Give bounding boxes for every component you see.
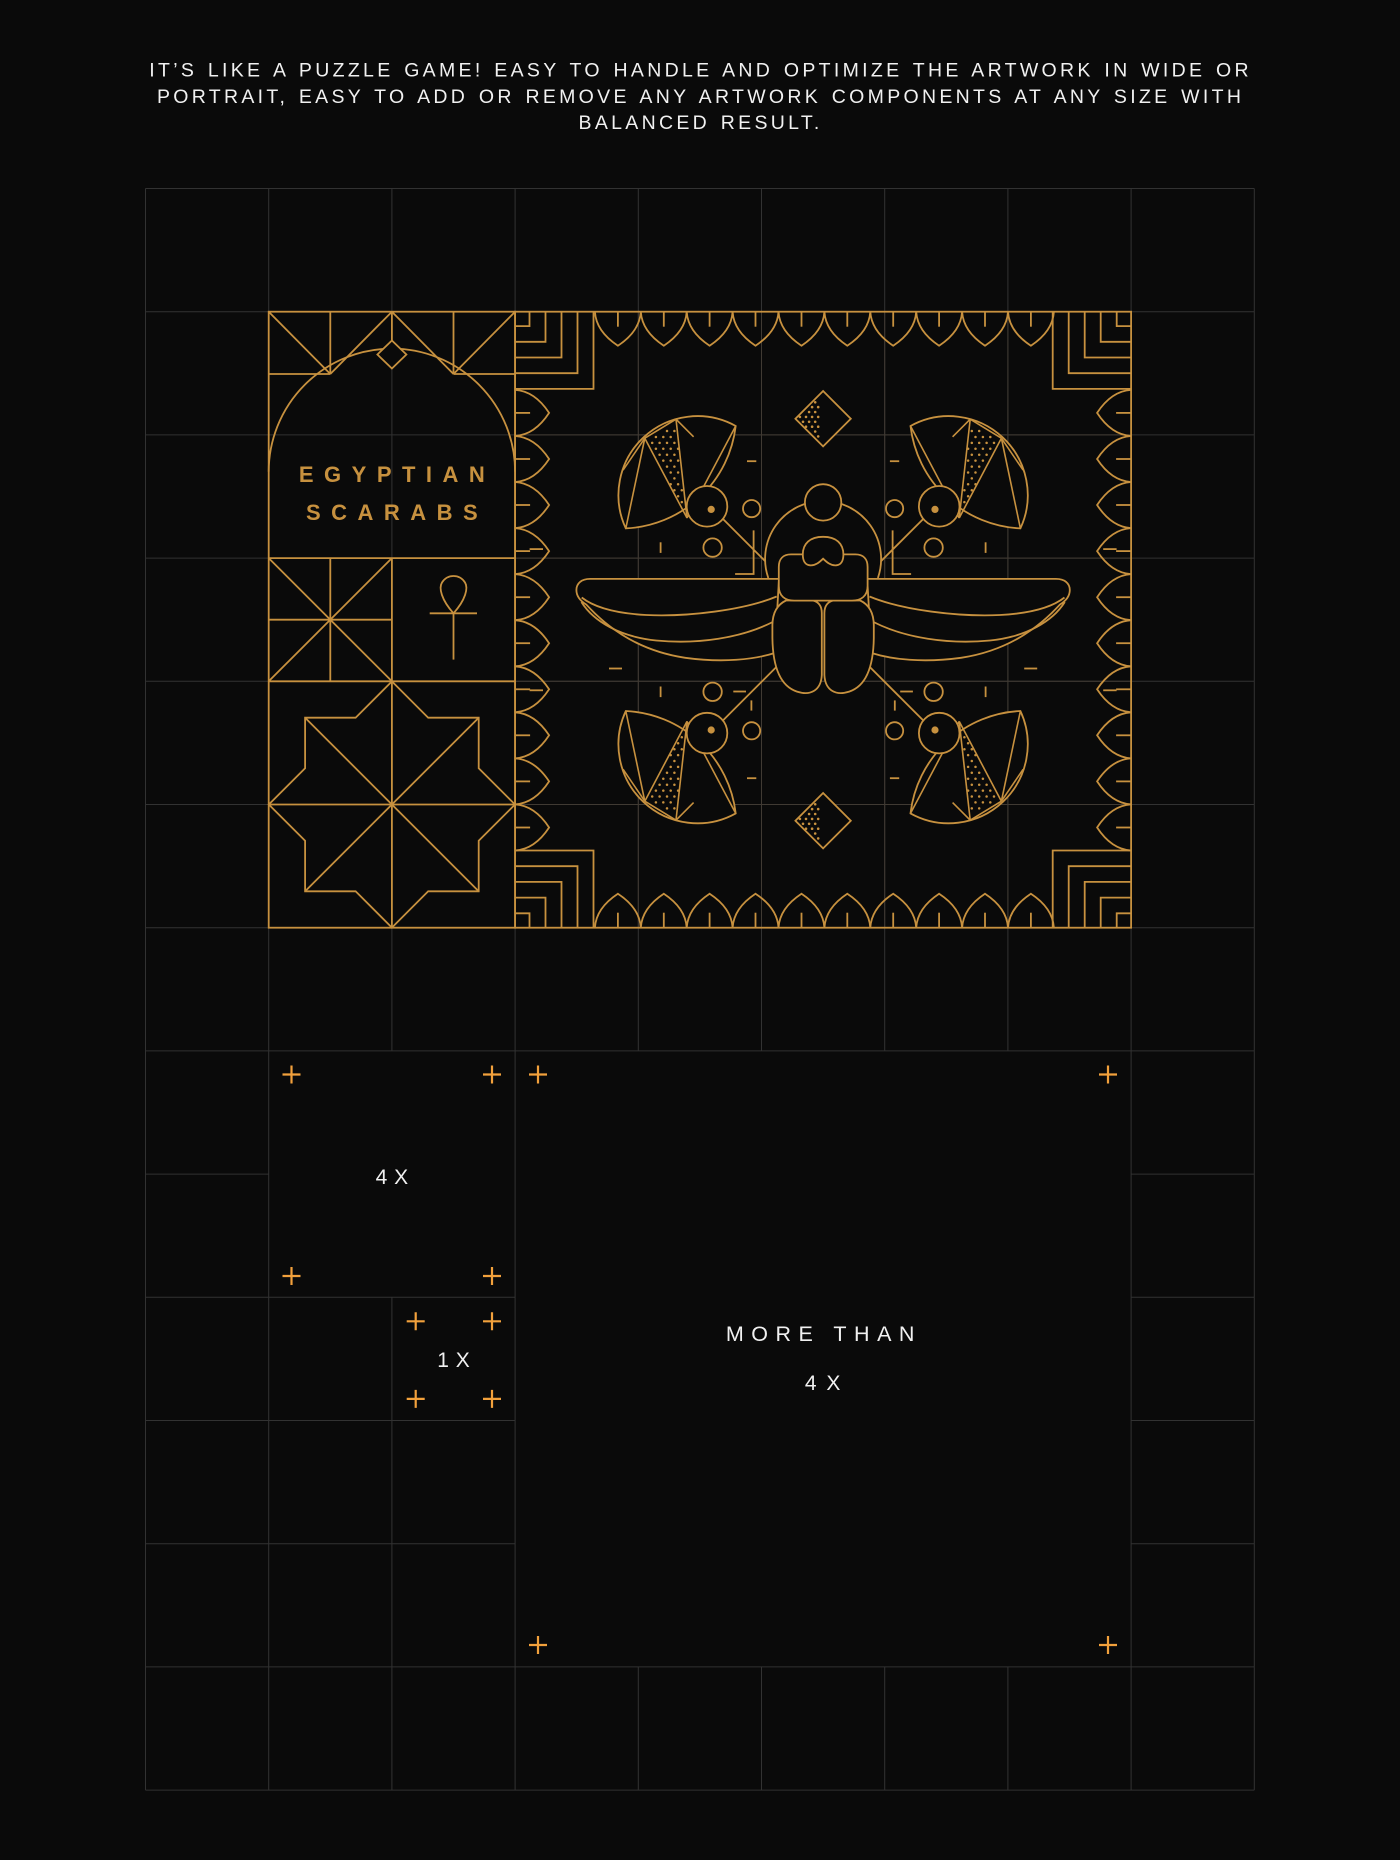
svg-text:PORTRAIT, EASY TO ADD OR REMOV: PORTRAIT, EASY TO ADD OR REMOVE ANY ARTW… [157, 86, 1244, 108]
svg-text:EGYPTIAN: EGYPTIAN [299, 462, 495, 487]
svg-text:4 X: 4 X [376, 1166, 409, 1189]
svg-text:BALANCED RESULT.: BALANCED RESULT. [579, 112, 823, 134]
svg-text:1 X: 1 X [437, 1349, 470, 1372]
svg-text:SCARABS: SCARABS [306, 500, 488, 525]
svg-text:IT’S LIKE A PUZZLE GAME! EASY: IT’S LIKE A PUZZLE GAME! EASY TO HANDLE … [149, 59, 1252, 81]
svg-text:4 X: 4 X [805, 1372, 843, 1395]
svg-text:MORE THAN: MORE THAN [726, 1322, 922, 1346]
